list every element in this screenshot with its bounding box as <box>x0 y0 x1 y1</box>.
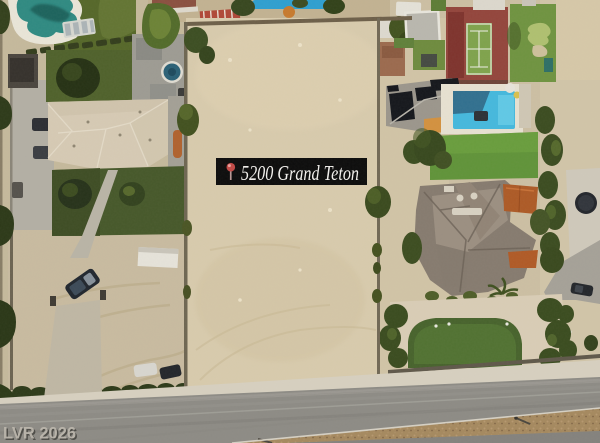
svg-text:LVR 2026: LVR 2026 <box>3 425 76 443</box>
